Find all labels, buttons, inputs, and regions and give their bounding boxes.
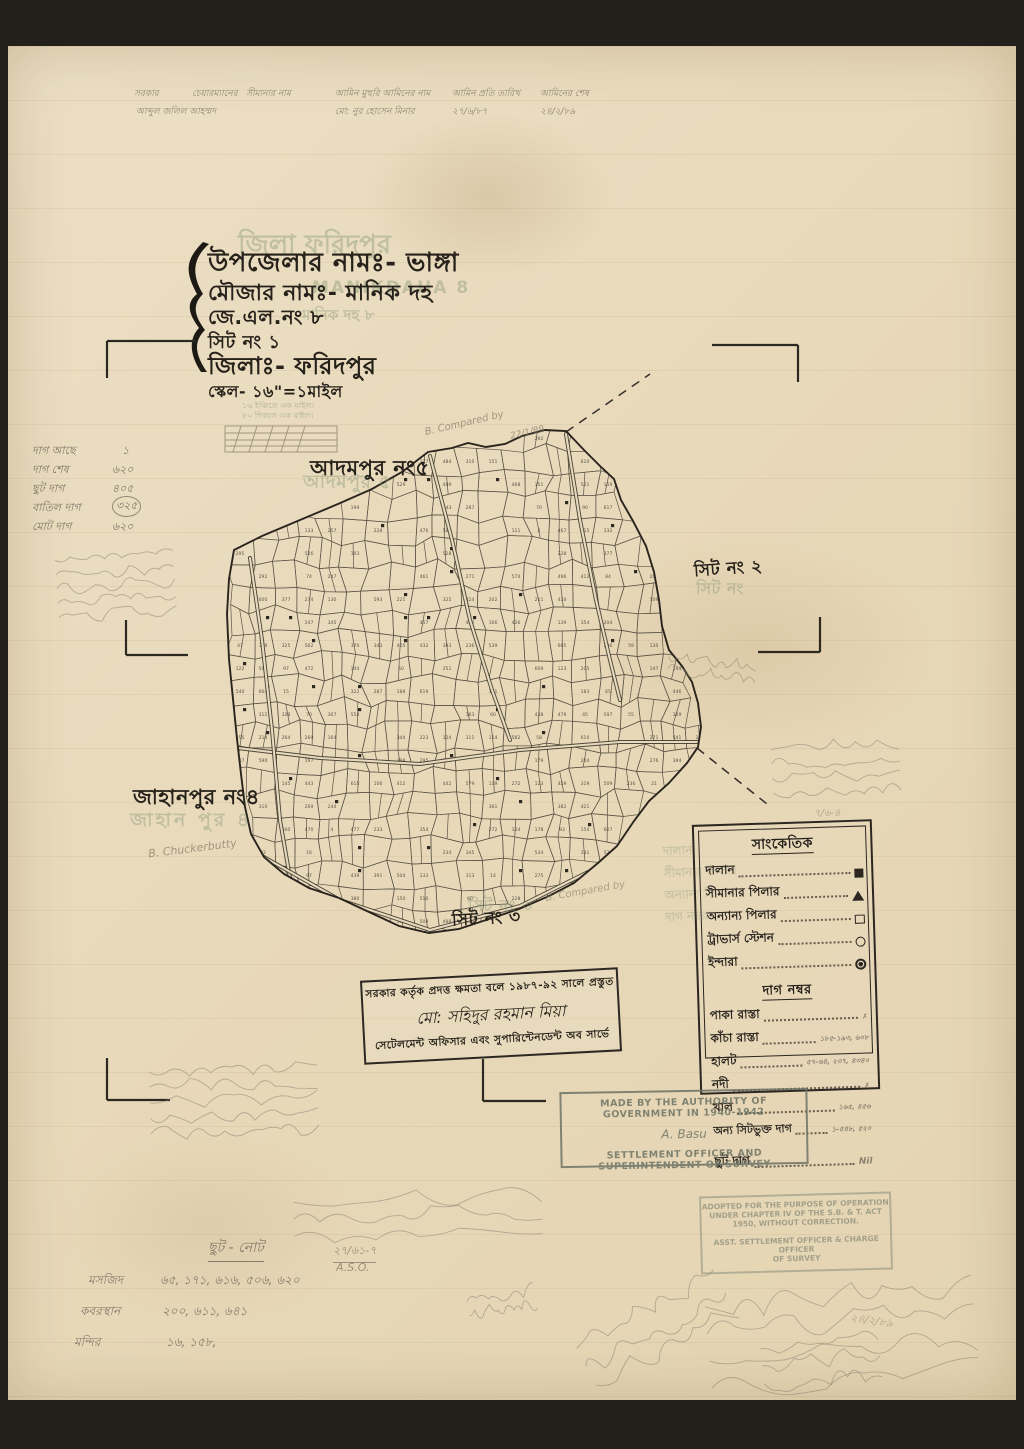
aso-initials: A.S.O. bbox=[336, 1261, 369, 1274]
pencil-scribble bbox=[147, 1055, 320, 1145]
svg-text:457: 457 bbox=[420, 620, 429, 626]
scribble-strokes bbox=[291, 1182, 543, 1249]
legend-row: অন্যান্য পিলার bbox=[706, 904, 865, 929]
registration-mark bbox=[483, 1059, 546, 1101]
svg-text:133: 133 bbox=[305, 528, 314, 534]
registration-mark bbox=[107, 341, 196, 378]
svg-text:609: 609 bbox=[535, 666, 544, 672]
scribble-line bbox=[150, 1108, 318, 1125]
scribble-line bbox=[151, 1121, 319, 1141]
legend-dag-row: কাঁচা রাস্তা ১৮৫-১৯৩, ৬০৮ bbox=[710, 1025, 869, 1050]
svg-text:247: 247 bbox=[328, 574, 337, 580]
legend-label: পাকা রাস্তা bbox=[710, 1006, 760, 1028]
legend-title: সাংকেতিক bbox=[752, 835, 814, 855]
svg-text:361: 361 bbox=[489, 804, 498, 810]
legend-dag-title: দাগ নম্বর bbox=[762, 982, 812, 1001]
svg-text:439: 439 bbox=[351, 873, 360, 879]
note-values: ১৬, ১৫৮, bbox=[166, 1334, 216, 1354]
dag-values: ✗ bbox=[862, 1012, 868, 1020]
svg-text:109: 109 bbox=[650, 597, 659, 603]
svg-text:272: 272 bbox=[512, 781, 521, 787]
svg-text:442: 442 bbox=[443, 781, 452, 787]
svg-text:605: 605 bbox=[558, 643, 567, 649]
scribble-line bbox=[56, 563, 174, 582]
svg-text:391: 391 bbox=[374, 873, 383, 879]
svg-text:380: 380 bbox=[351, 896, 360, 902]
svg-text:2: 2 bbox=[538, 528, 541, 534]
signature-scribble bbox=[757, 1324, 883, 1396]
sheet-content: সরকার চেয়ারম্যানের সীমানার নাম আমিন মুহ… bbox=[0, 0, 1024, 1449]
svg-text:257: 257 bbox=[328, 528, 337, 534]
svg-text:528: 528 bbox=[443, 551, 452, 557]
note-values: ২০০, ৬১১, ৬৪১ bbox=[162, 1303, 247, 1323]
svg-text:287: 287 bbox=[374, 689, 383, 695]
svg-text:233: 233 bbox=[374, 827, 383, 833]
svg-text:202: 202 bbox=[489, 597, 498, 603]
target-circle-icon bbox=[855, 958, 866, 969]
open-circle-icon bbox=[855, 936, 865, 946]
svg-text:526: 526 bbox=[305, 551, 314, 557]
svg-text:272: 272 bbox=[489, 827, 498, 833]
english-authority-stamp: MADE BY THE AUTHORITY OF GOVERNMENT IN 1… bbox=[559, 1088, 808, 1168]
svg-text:345: 345 bbox=[466, 850, 475, 856]
sheet3-label: সিট নং ৩ bbox=[451, 904, 521, 936]
svg-text:4: 4 bbox=[331, 827, 334, 833]
svg-text:593: 593 bbox=[374, 597, 383, 603]
svg-text:70: 70 bbox=[536, 505, 542, 511]
svg-text:562: 562 bbox=[305, 643, 314, 649]
stamp-line1: MADE BY THE AUTHORITY OF GOVERNMENT IN 1… bbox=[561, 1095, 805, 1121]
note-label: মসজিদ bbox=[88, 1272, 123, 1292]
scribble-line bbox=[773, 783, 901, 799]
svg-text:504: 504 bbox=[397, 873, 406, 879]
bengali-authority-stamp: সরকার কর্তৃক প্রদত্ত ক্ষমতা বলে ১৯৮৭-৯২ … bbox=[360, 967, 622, 1064]
svg-text:103: 103 bbox=[351, 551, 360, 557]
svg-text:269: 269 bbox=[305, 735, 314, 741]
svg-text:106: 106 bbox=[374, 781, 383, 787]
stamp-line2: SETTLEMENT OFFICER AND SUPERINTENDENT OF… bbox=[562, 1147, 806, 1173]
pencil-scribble bbox=[291, 1182, 543, 1249]
svg-text:311: 311 bbox=[466, 735, 475, 741]
svg-text:468: 468 bbox=[512, 482, 521, 488]
scribble-line bbox=[761, 1345, 880, 1374]
dotted-leader bbox=[778, 931, 852, 945]
dotted-leader bbox=[738, 862, 850, 878]
svg-text:123: 123 bbox=[558, 666, 567, 672]
svg-text:70: 70 bbox=[306, 712, 312, 718]
svg-text:412: 412 bbox=[581, 574, 590, 580]
svg-text:619: 619 bbox=[420, 689, 429, 695]
svg-text:410: 410 bbox=[558, 597, 567, 603]
notes-title: ছুট - নোট bbox=[208, 1236, 264, 1262]
svg-text:145: 145 bbox=[282, 781, 291, 787]
svg-text:534: 534 bbox=[535, 850, 544, 856]
svg-text:90: 90 bbox=[582, 505, 588, 511]
dag-values: ১৬৫, ৪৫৬ bbox=[838, 1100, 871, 1113]
svg-text:438: 438 bbox=[535, 712, 544, 718]
svg-text:615: 615 bbox=[351, 781, 360, 787]
open-square-icon bbox=[855, 915, 865, 924]
jahanpur-label: জাহানপুর নং৪ bbox=[133, 781, 260, 816]
svg-text:377: 377 bbox=[282, 597, 291, 603]
legend-row: সীমানার পিলার bbox=[706, 881, 865, 906]
dashed-boundary-ne bbox=[566, 374, 650, 432]
legend-label: অন্যান্য পিলার bbox=[706, 906, 777, 928]
dotted-leader bbox=[783, 885, 848, 899]
svg-text:310: 310 bbox=[466, 459, 475, 465]
svg-text:476: 476 bbox=[558, 712, 567, 718]
svg-text:15: 15 bbox=[283, 689, 289, 695]
svg-text:344: 344 bbox=[397, 735, 406, 741]
svg-text:331: 331 bbox=[581, 850, 590, 856]
svg-text:540: 540 bbox=[236, 689, 245, 695]
svg-text:188: 188 bbox=[397, 689, 406, 695]
svg-text:234: 234 bbox=[443, 850, 452, 856]
scribble-line bbox=[772, 767, 900, 785]
plot-numbers: 2954712254055524729260038959860431221459… bbox=[236, 436, 705, 925]
svg-text:228: 228 bbox=[558, 551, 567, 557]
dag-values: ১৮৫-১৯৩, ৬০৮ bbox=[819, 1031, 868, 1045]
pencil-scribble bbox=[52, 542, 177, 628]
svg-text:84: 84 bbox=[605, 574, 611, 580]
svg-text:467: 467 bbox=[558, 528, 567, 534]
svg-text:574: 574 bbox=[512, 574, 521, 580]
svg-text:354: 354 bbox=[420, 827, 429, 833]
svg-text:204: 204 bbox=[604, 620, 613, 626]
svg-text:446: 446 bbox=[673, 689, 682, 695]
svg-text:97: 97 bbox=[283, 666, 289, 672]
svg-text:211: 211 bbox=[535, 597, 544, 603]
svg-text:470: 470 bbox=[305, 827, 314, 833]
svg-text:178: 178 bbox=[535, 827, 544, 833]
scribble-line bbox=[760, 1330, 879, 1355]
svg-text:607: 607 bbox=[604, 827, 613, 833]
svg-text:183: 183 bbox=[581, 689, 590, 695]
filled-square-icon bbox=[854, 869, 863, 878]
svg-text:133: 133 bbox=[420, 873, 429, 879]
svg-text:150: 150 bbox=[397, 896, 406, 902]
note-label: মন্দির bbox=[74, 1334, 100, 1354]
svg-text:271: 271 bbox=[466, 574, 475, 580]
svg-text:539: 539 bbox=[489, 643, 498, 649]
svg-text:58: 58 bbox=[536, 735, 542, 741]
legend-dag-row: পাকা রাস্তা ✗ bbox=[710, 1002, 869, 1027]
parcel-lines bbox=[224, 422, 714, 936]
svg-text:343: 343 bbox=[374, 643, 383, 649]
svg-text:329: 329 bbox=[673, 712, 682, 718]
svg-text:443: 443 bbox=[305, 781, 314, 787]
legend-box: সাংকেতিক দালান সীমানার পিলার অন্যান্য পি… bbox=[692, 819, 880, 1095]
scribble-line bbox=[668, 652, 757, 672]
dotted-leader bbox=[780, 908, 850, 922]
svg-text:412: 412 bbox=[397, 781, 406, 787]
svg-text:65: 65 bbox=[605, 689, 611, 695]
registration-mark bbox=[126, 620, 188, 655]
svg-text:610: 610 bbox=[581, 459, 590, 465]
svg-text:312: 312 bbox=[259, 712, 268, 718]
svg-text:287: 287 bbox=[466, 505, 475, 511]
svg-text:393: 393 bbox=[443, 643, 452, 649]
svg-text:509: 509 bbox=[604, 781, 613, 787]
svg-text:432: 432 bbox=[420, 643, 429, 649]
svg-text:617: 617 bbox=[604, 505, 613, 511]
svg-text:124: 124 bbox=[512, 827, 521, 833]
registration-mark bbox=[712, 345, 798, 382]
svg-text:579: 579 bbox=[466, 781, 475, 787]
svg-text:236: 236 bbox=[466, 643, 475, 649]
adampur-label: আদমপুর নং৫ bbox=[310, 452, 430, 487]
scribble-strokes bbox=[147, 1055, 320, 1145]
svg-text:124: 124 bbox=[443, 735, 452, 741]
svg-text:332: 332 bbox=[604, 528, 613, 534]
legend-row: দালান bbox=[705, 858, 864, 883]
svg-text:600: 600 bbox=[259, 597, 268, 603]
mouza-boundary bbox=[227, 430, 701, 933]
svg-text:264: 264 bbox=[282, 735, 291, 741]
svg-text:47: 47 bbox=[237, 643, 243, 649]
scribble-strokes bbox=[768, 733, 901, 804]
svg-text:477: 477 bbox=[351, 827, 360, 833]
scribble-line bbox=[149, 1074, 317, 1095]
svg-text:151: 151 bbox=[489, 459, 498, 465]
svg-text:147: 147 bbox=[650, 666, 659, 672]
svg-text:382: 382 bbox=[558, 804, 567, 810]
svg-text:16: 16 bbox=[306, 850, 312, 856]
svg-text:409: 409 bbox=[443, 482, 452, 488]
dag-values: ৫৭-৬৪, ২৩৭, ৪৩৪০ bbox=[806, 1054, 869, 1068]
svg-text:163: 163 bbox=[466, 712, 475, 718]
svg-text:597: 597 bbox=[604, 712, 613, 718]
svg-text:166: 166 bbox=[489, 620, 498, 626]
svg-text:269: 269 bbox=[305, 804, 314, 810]
svg-text:214: 214 bbox=[259, 735, 268, 741]
svg-text:45: 45 bbox=[582, 712, 588, 718]
cadastral-map: 2954712254055524729260038959860431221459… bbox=[224, 422, 714, 936]
svg-text:204: 204 bbox=[581, 758, 590, 764]
svg-text:179: 179 bbox=[535, 758, 544, 764]
svg-text:154: 154 bbox=[581, 827, 590, 833]
svg-text:472: 472 bbox=[305, 666, 314, 672]
svg-text:521: 521 bbox=[581, 482, 590, 488]
note-label: কবরস্থান bbox=[80, 1303, 120, 1323]
scribble-line bbox=[149, 1061, 317, 1078]
dotted-leader bbox=[741, 954, 851, 969]
svg-text:345: 345 bbox=[328, 620, 337, 626]
svg-text:394: 394 bbox=[673, 758, 682, 764]
svg-text:139: 139 bbox=[558, 620, 567, 626]
svg-text:325: 325 bbox=[282, 643, 291, 649]
svg-text:247: 247 bbox=[305, 620, 314, 626]
scribble-strokes bbox=[52, 542, 177, 628]
svg-text:307: 307 bbox=[328, 712, 337, 718]
svg-text:251: 251 bbox=[443, 666, 452, 672]
registration-mark bbox=[758, 617, 820, 652]
legend-label: ইন্দারা bbox=[708, 954, 738, 975]
svg-text:123: 123 bbox=[535, 781, 544, 787]
svg-text:426: 426 bbox=[512, 620, 521, 626]
svg-text:582: 582 bbox=[512, 735, 521, 741]
svg-text:354: 354 bbox=[581, 620, 590, 626]
svg-text:164: 164 bbox=[328, 735, 337, 741]
svg-text:144: 144 bbox=[351, 666, 360, 672]
right-margin-reference: ৭/৬-৪ bbox=[814, 806, 840, 823]
svg-text:59: 59 bbox=[628, 643, 634, 649]
filled-triangle-icon bbox=[852, 891, 864, 901]
svg-text:74: 74 bbox=[306, 574, 312, 580]
svg-text:370: 370 bbox=[351, 643, 360, 649]
svg-text:205: 205 bbox=[581, 666, 590, 672]
svg-text:421: 421 bbox=[581, 804, 590, 810]
svg-text:244: 244 bbox=[328, 804, 337, 810]
scribble-line bbox=[57, 574, 176, 595]
sheet2-label: সিট নং ২ bbox=[693, 554, 764, 587]
legend-label: হালট bbox=[711, 1053, 737, 1074]
svg-text:130: 130 bbox=[650, 643, 659, 649]
svg-text:325: 325 bbox=[443, 597, 452, 603]
svg-text:223: 223 bbox=[420, 735, 429, 741]
svg-text:221: 221 bbox=[397, 597, 406, 603]
dag-values: ✗ bbox=[864, 1081, 870, 1089]
scribble-line bbox=[55, 548, 173, 562]
legend-label: দালান bbox=[705, 862, 735, 883]
map-inner: 2954712254055524729260038959860431221459… bbox=[224, 422, 714, 936]
dotted-leader bbox=[763, 1031, 816, 1045]
svg-text:199: 199 bbox=[351, 505, 360, 511]
svg-text:130: 130 bbox=[328, 597, 337, 603]
svg-text:111: 111 bbox=[512, 528, 521, 534]
svg-text:610: 610 bbox=[581, 735, 590, 741]
note-values: ৬৫, ১৭১, ৬১৬, ৫০৬, ৬২০ bbox=[160, 1272, 300, 1292]
legend-label: সীমানার পিলার bbox=[706, 883, 780, 905]
svg-text:275: 275 bbox=[535, 873, 544, 879]
svg-text:496: 496 bbox=[558, 574, 567, 580]
dotted-leader bbox=[764, 1007, 859, 1022]
svg-text:60: 60 bbox=[490, 712, 496, 718]
svg-text:151: 151 bbox=[535, 482, 544, 488]
svg-text:236: 236 bbox=[627, 781, 636, 787]
legend-row: ট্রাভার্স স্টেশন bbox=[707, 927, 866, 952]
stamp-signature: A. Basu bbox=[562, 1125, 806, 1143]
svg-text:55: 55 bbox=[628, 712, 634, 718]
svg-text:322: 322 bbox=[351, 689, 360, 695]
svg-text:510: 510 bbox=[420, 896, 429, 902]
svg-text:159: 159 bbox=[604, 482, 613, 488]
scribble-line bbox=[150, 1090, 318, 1109]
svg-text:484: 484 bbox=[443, 459, 452, 465]
dag-values: ১-৫৪৮, ৫২০ bbox=[831, 1122, 871, 1135]
svg-text:276: 276 bbox=[650, 758, 659, 764]
chhut-value: Nil bbox=[859, 1156, 873, 1166]
svg-text:292: 292 bbox=[259, 574, 268, 580]
svg-text:319: 319 bbox=[581, 781, 590, 787]
dashed-boundary-se bbox=[697, 748, 772, 808]
svg-text:274: 274 bbox=[305, 597, 314, 603]
scribble-strokes bbox=[757, 1324, 883, 1396]
svg-text:50: 50 bbox=[398, 666, 404, 672]
svg-text:119: 119 bbox=[489, 781, 498, 787]
svg-text:429: 429 bbox=[558, 781, 567, 787]
svg-text:554: 554 bbox=[351, 712, 360, 718]
legend-label: ট্রাভার্স স্টেশন bbox=[707, 929, 774, 951]
scribble-line bbox=[771, 752, 899, 771]
svg-text:405: 405 bbox=[397, 643, 406, 649]
svg-text:328: 328 bbox=[282, 712, 291, 718]
legend-label: কাঁচা রাস্তা bbox=[710, 1029, 759, 1051]
svg-text:21: 21 bbox=[651, 781, 657, 787]
svg-text:228: 228 bbox=[374, 528, 383, 534]
svg-text:14: 14 bbox=[490, 873, 496, 879]
dotted-leader bbox=[740, 1055, 802, 1069]
scribble-line bbox=[59, 603, 178, 624]
adopted-stamp: ADOPTED FOR THE PURPOSE OF OPERATION UND… bbox=[699, 1192, 893, 1275]
legend-dag-row: হালট ৫৭-৬৪, ২৩৭, ৪৩৪০ bbox=[711, 1048, 870, 1073]
svg-text:295: 295 bbox=[236, 551, 245, 557]
pencil-scribble bbox=[768, 733, 901, 804]
scribble-line bbox=[771, 736, 900, 756]
svg-text:377: 377 bbox=[604, 551, 613, 557]
svg-text:122: 122 bbox=[236, 666, 245, 672]
svg-text:292: 292 bbox=[535, 436, 544, 442]
scribble-line bbox=[293, 1186, 541, 1211]
svg-text:154: 154 bbox=[489, 735, 498, 741]
svg-text:509: 509 bbox=[420, 919, 429, 925]
svg-text:313: 313 bbox=[466, 873, 475, 879]
svg-text:93: 93 bbox=[559, 827, 565, 833]
svg-text:476: 476 bbox=[420, 528, 429, 534]
svg-text:590: 590 bbox=[259, 758, 268, 764]
svg-text:97: 97 bbox=[306, 873, 312, 879]
svg-text:461: 461 bbox=[420, 574, 429, 580]
